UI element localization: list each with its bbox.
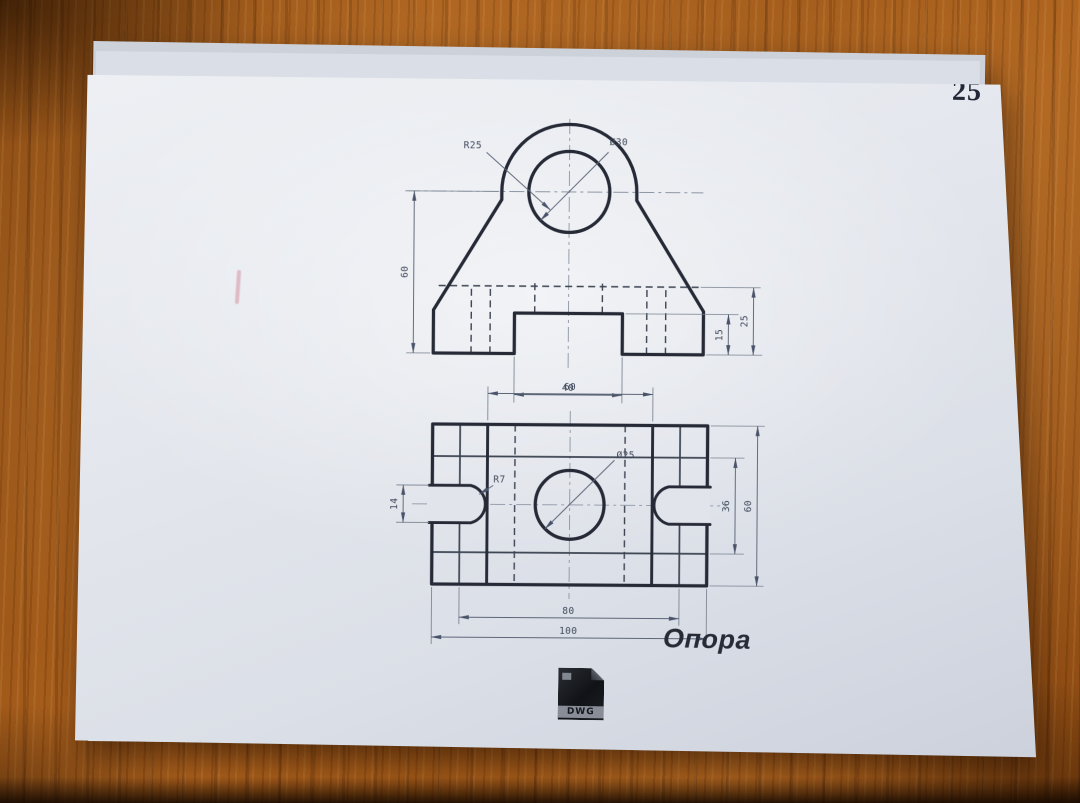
technical-drawing: R25 Ø30 60 40 15 (366, 110, 790, 658)
dim-label: 60 (564, 382, 576, 393)
inner-edge (432, 552, 707, 554)
icon-mark (562, 673, 571, 680)
dim-label: 100 (559, 626, 577, 637)
dim-label: R25 (464, 140, 482, 151)
plan-view: 60 14 R7 Ø25 36 (388, 381, 765, 647)
dwg-label: DWG (567, 707, 595, 717)
dimension-line (735, 458, 736, 554)
leader-line (541, 152, 609, 221)
hidden-line (514, 425, 515, 585)
dimension-line (757, 426, 758, 586)
pen-mark (235, 270, 241, 304)
drawing-sheet: 25 (75, 58, 1037, 760)
dwg-file-icon: DWG (558, 668, 605, 721)
hidden-line (439, 286, 699, 288)
slot-fill (429, 485, 485, 523)
dim-label: 36 (721, 500, 732, 512)
dimension-line (488, 393, 653, 394)
front-vertical-centerline (568, 119, 570, 371)
dim-label: 60 (400, 266, 411, 278)
dim-label: 80 (562, 606, 574, 617)
front-outline (433, 124, 705, 355)
dwg-label-band: DWG (558, 706, 604, 719)
dim-label: 15 (714, 329, 725, 341)
slot-fill (654, 487, 710, 525)
dimension-line (459, 617, 679, 619)
dim-label: Ø25 (616, 450, 634, 461)
dim-label: 60 (743, 500, 754, 512)
extension-line (625, 314, 738, 315)
dim-label: Ø30 (610, 137, 628, 148)
dim-label: 14 (389, 498, 400, 510)
inner-edge (432, 456, 707, 458)
front-view: R25 Ø30 60 40 15 (399, 118, 764, 405)
part-title: Опора (663, 623, 752, 656)
paper-stack: 25 (0, 0, 1080, 803)
dim-label: 25 (739, 315, 750, 327)
dim-label: R7 (493, 474, 505, 485)
dimension-line (413, 191, 414, 353)
photo-of-drawing: { "page": { "number": "25" }, "drawing":… (0, 0, 1080, 803)
folded-corner-icon (591, 668, 604, 680)
